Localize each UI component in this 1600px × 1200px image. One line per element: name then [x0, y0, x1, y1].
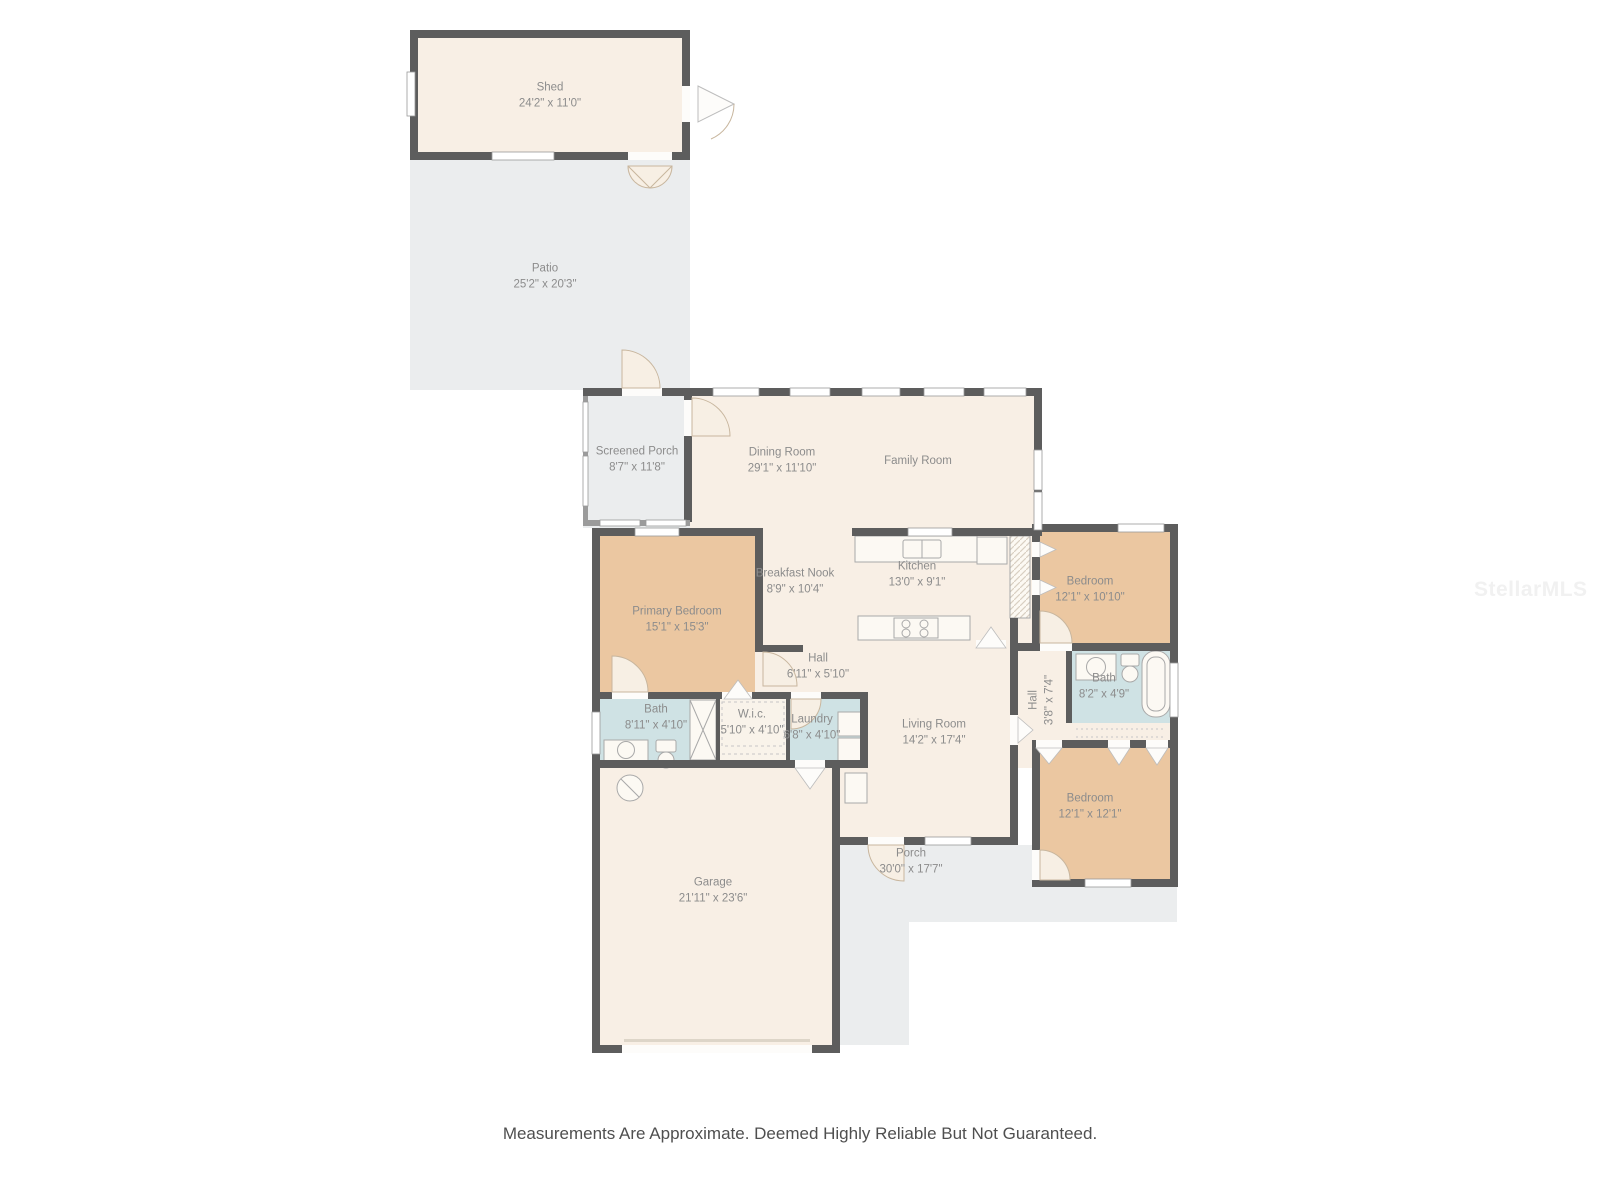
- utility-closet: [845, 773, 867, 803]
- label-living-room: Living Room14'2" x 17'4": [902, 717, 966, 748]
- bathtub: [1142, 651, 1170, 717]
- disclaimer-text: Measurements Are Approximate. Deemed Hig…: [503, 1124, 1097, 1144]
- label-patio: Patio25'2" x 20'3": [513, 261, 576, 292]
- label-hall-right: Hall3'8" x 7'4": [1026, 675, 1057, 725]
- label-bath-left: Bath8'11" x 4'10": [625, 702, 687, 733]
- toilet-left-tank: [656, 740, 676, 752]
- label-breakfast-nook: Breakfast Nook8'9" x 10'4": [756, 566, 835, 597]
- label-family-room: Family Room: [884, 454, 952, 470]
- label-hall-left: Hall6'11" x 5'10": [787, 651, 849, 682]
- shed-side-door: [698, 86, 734, 122]
- label-bath-right: Bath8'2" x 4'9": [1079, 671, 1129, 702]
- label-garage: Garage21'11" x 23'6": [679, 875, 748, 906]
- floor-plan: Shed24'2" x 11'0" Patio25'2" x 20'3" Scr…: [0, 0, 1600, 1200]
- label-screened-porch: Screened Porch8'7" x 11'8": [596, 444, 678, 475]
- label-porch: Porch30'0" x 17'7": [879, 846, 942, 877]
- toilet-right-tank: [1121, 654, 1139, 666]
- refrigerator: [977, 537, 1007, 564]
- label-wic: W.i.c.5'10" x 4'10": [720, 707, 783, 738]
- watermark: StellarMLS: [1474, 578, 1588, 602]
- label-bedroom-bottom-right: Bedroom12'1" x 12'1": [1058, 791, 1121, 822]
- floor-plan-graphics: [0, 0, 1600, 1200]
- label-bedroom-top-right: Bedroom12'1" x 10'10": [1055, 574, 1124, 605]
- label-dining-room: Dining Room29'1" x 11'10": [748, 445, 817, 476]
- sink-left: [618, 742, 635, 759]
- label-shed: Shed24'2" x 11'0": [519, 80, 581, 111]
- label-laundry: Laundry6'8" x 4'10": [784, 712, 841, 743]
- stove: [894, 618, 938, 638]
- label-kitchen: Kitchen13'0" x 9'1": [889, 559, 946, 590]
- label-primary-bedroom: Primary Bedroom15'1" x 15'3": [632, 604, 721, 635]
